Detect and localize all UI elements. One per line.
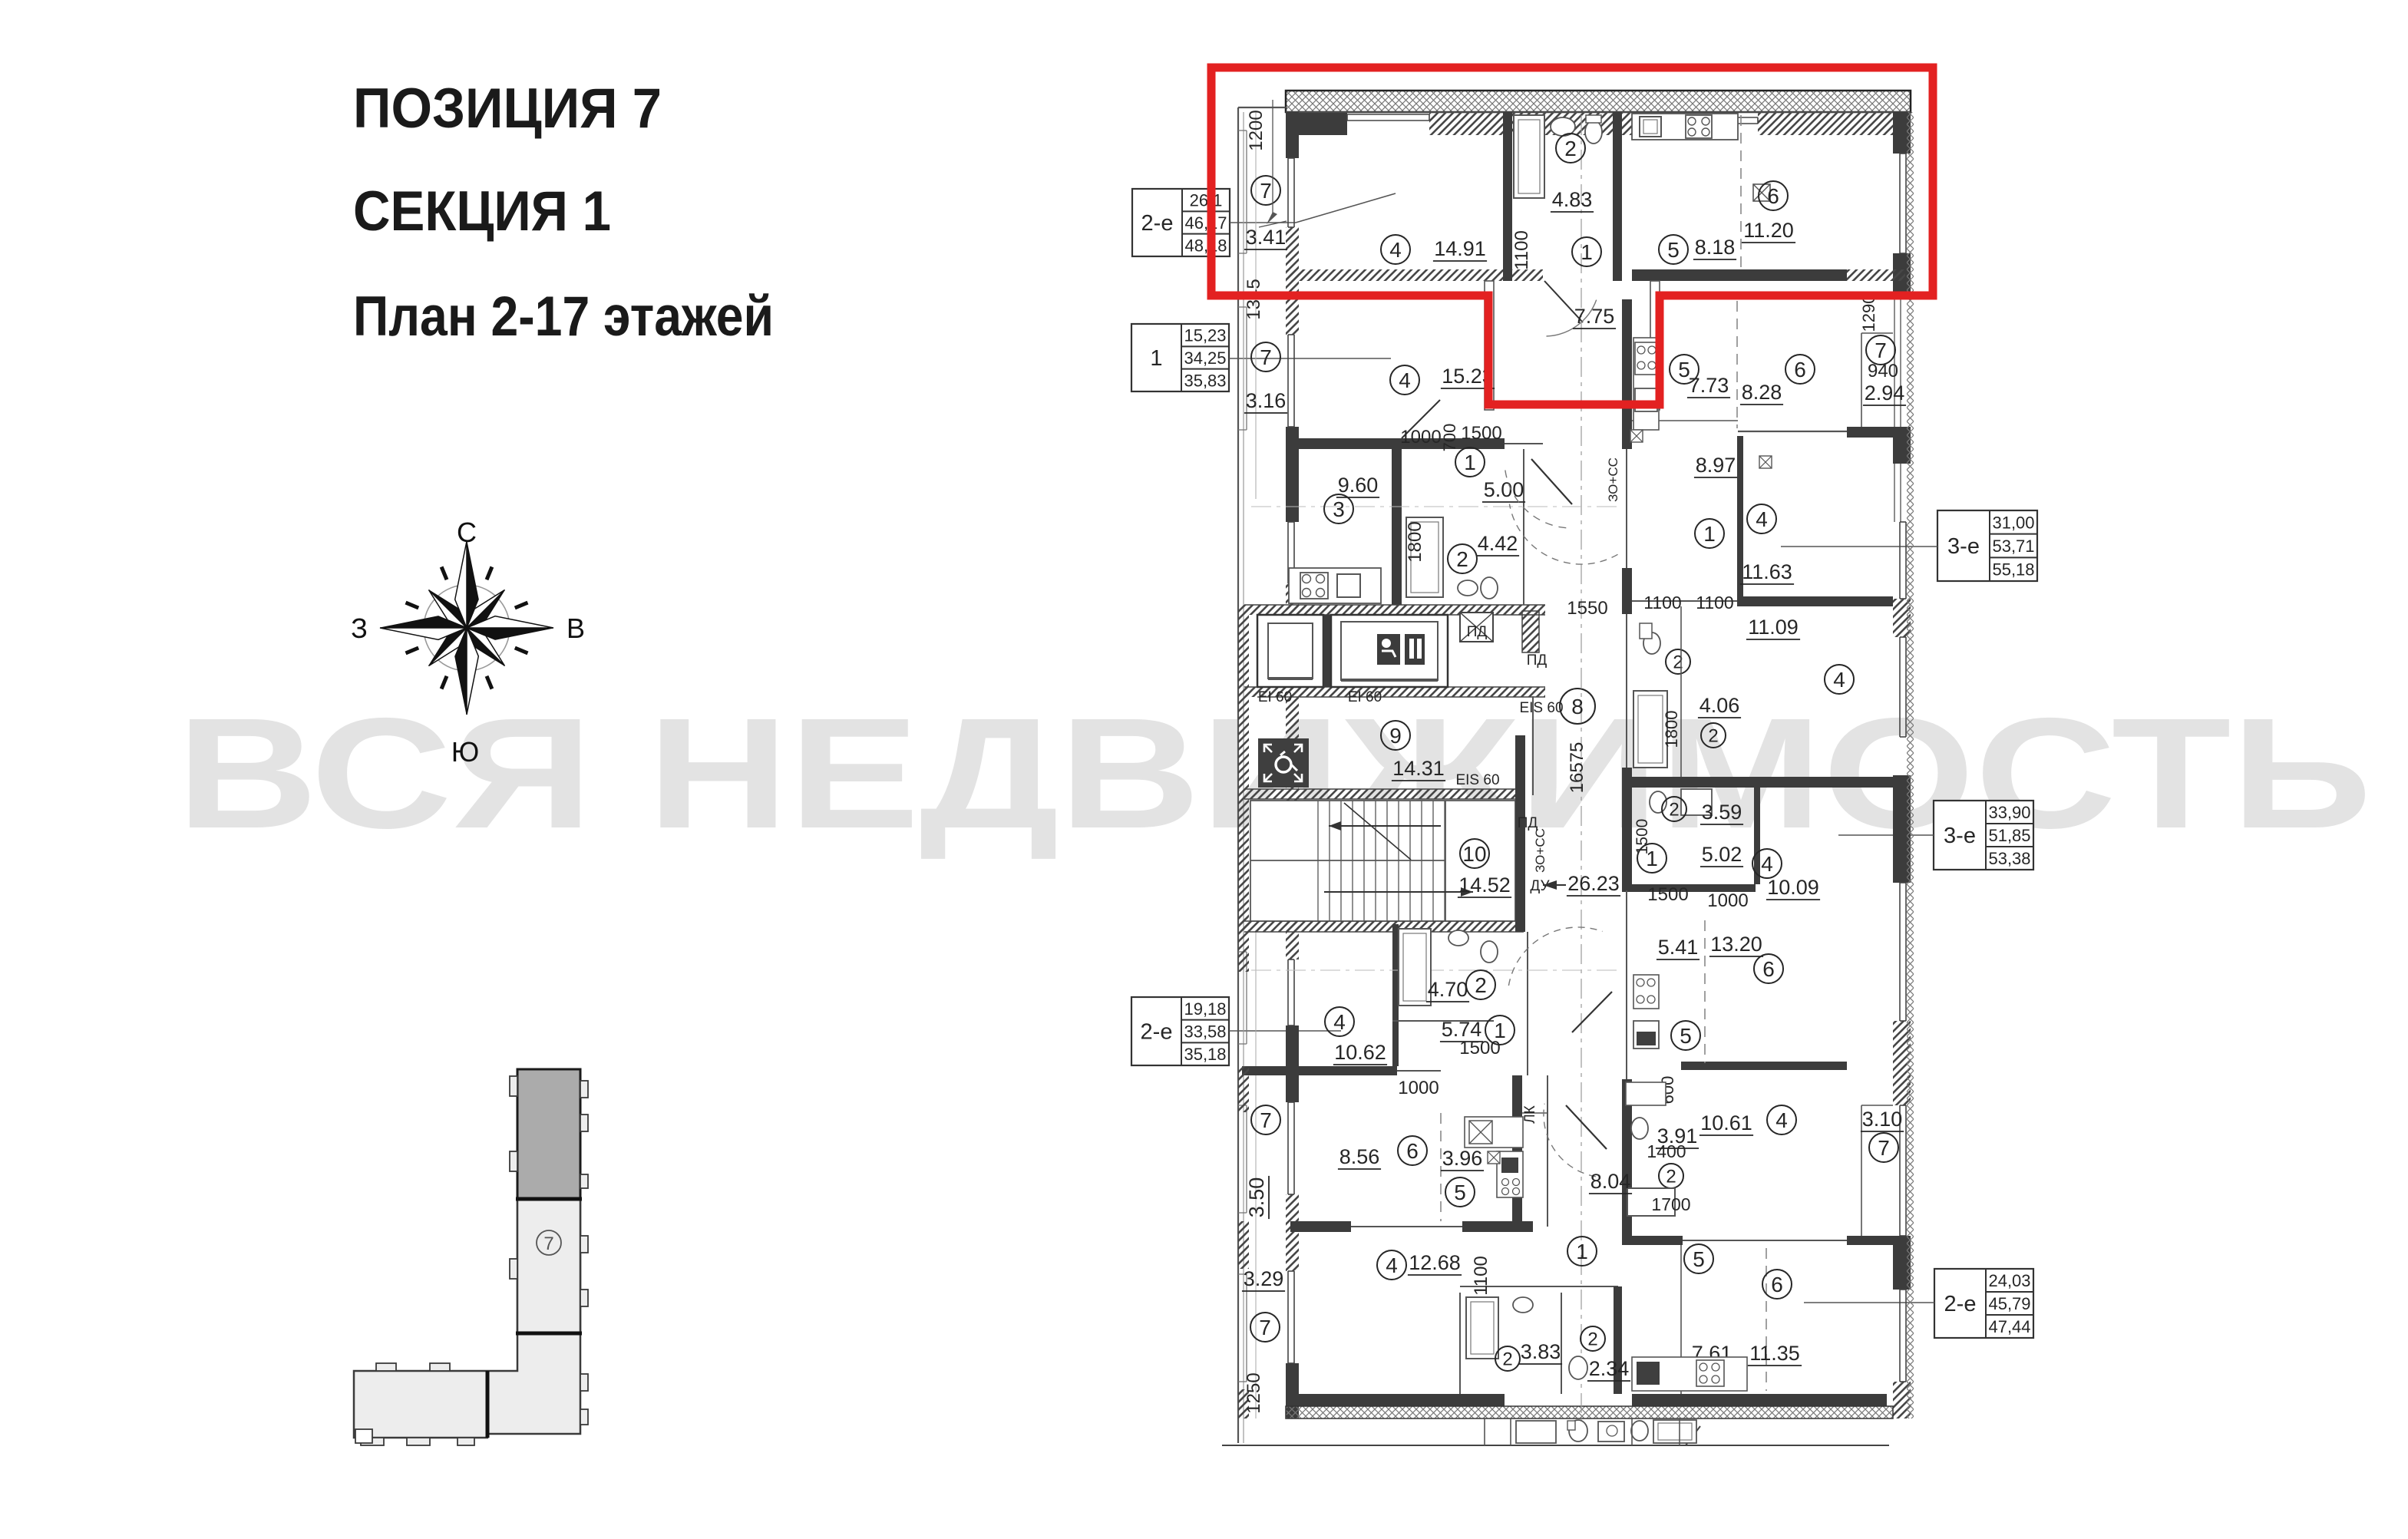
svg-text:С: С: [457, 517, 477, 548]
svg-text:1800: 1800: [1662, 711, 1681, 748]
svg-text:5.02: 5.02: [1702, 843, 1742, 866]
svg-text:2: 2: [1708, 726, 1718, 747]
svg-text:6: 6: [1762, 957, 1775, 981]
svg-text:45,79: 45,79: [1988, 1294, 2030, 1313]
svg-text:13.20: 13.20: [1710, 933, 1762, 956]
svg-text:1800: 1800: [1405, 521, 1425, 562]
svg-text:1: 1: [1581, 240, 1593, 264]
svg-text:940: 940: [1868, 361, 1898, 381]
svg-text:1100: 1100: [1471, 1256, 1491, 1296]
svg-text:1: 1: [1150, 346, 1162, 371]
svg-text:26.23: 26.23: [1567, 872, 1620, 895]
svg-text:2: 2: [1502, 1349, 1512, 1370]
svg-text:12.68: 12.68: [1409, 1251, 1461, 1274]
svg-text:3.29: 3.29: [1244, 1267, 1284, 1290]
svg-text:34,25: 34,25: [1184, 348, 1226, 368]
svg-text:В: В: [566, 613, 585, 644]
svg-text:4: 4: [1399, 368, 1411, 392]
svg-text:1: 1: [1576, 1240, 1588, 1263]
svg-text:8.56: 8.56: [1339, 1145, 1380, 1168]
svg-text:7: 7: [1878, 1136, 1890, 1160]
svg-text:7: 7: [1260, 179, 1272, 203]
svg-text:4: 4: [1386, 1253, 1398, 1277]
svg-text:3.16: 3.16: [1246, 389, 1287, 412]
svg-text:План 2-17 этажей: План 2-17 этажей: [353, 286, 774, 348]
svg-text:1: 1: [1703, 522, 1716, 546]
svg-text:8.28: 8.28: [1742, 381, 1782, 404]
svg-text:8: 8: [1571, 695, 1584, 718]
svg-text:2: 2: [1666, 1167, 1676, 1187]
svg-text:1000: 1000: [1398, 1078, 1439, 1098]
svg-text:9.60: 9.60: [1338, 474, 1379, 497]
svg-text:1500: 1500: [1459, 1038, 1500, 1058]
svg-text:3-е: 3-е: [1944, 824, 1976, 848]
svg-text:ЗО+СС: ЗО+СС: [1533, 828, 1548, 873]
svg-text:1700: 1700: [1651, 1194, 1690, 1214]
svg-text:1290: 1290: [1859, 295, 1878, 332]
svg-text:2: 2: [1587, 1329, 1597, 1350]
svg-text:2: 2: [1564, 137, 1577, 160]
svg-text:15,23: 15,23: [1184, 326, 1226, 345]
svg-text:10: 10: [1462, 842, 1486, 866]
svg-text:8.18: 8.18: [1695, 236, 1736, 259]
svg-text:19,18: 19,18: [1184, 999, 1226, 1019]
svg-text:26,1: 26,1: [1190, 191, 1223, 210]
svg-text:47,44: 47,44: [1988, 1317, 2030, 1336]
svg-text:7: 7: [1259, 1316, 1271, 1339]
svg-text:53,71: 53,71: [1992, 537, 2034, 556]
svg-text:6: 6: [1794, 358, 1806, 381]
svg-text:3: 3: [1333, 497, 1345, 521]
svg-text:ПД: ПД: [1467, 624, 1488, 640]
svg-text:4.70: 4.70: [1428, 978, 1468, 1001]
svg-text:7: 7: [1875, 339, 1887, 362]
svg-text:11.63: 11.63: [1742, 560, 1792, 583]
svg-text:ПД: ПД: [1527, 652, 1548, 669]
svg-text:8.97: 8.97: [1696, 454, 1736, 477]
svg-text:7: 7: [1260, 1108, 1272, 1132]
svg-text:5: 5: [1454, 1181, 1466, 1204]
svg-text:3.83: 3.83: [1521, 1340, 1561, 1363]
svg-text:55,18: 55,18: [1992, 560, 2034, 580]
svg-text:1200: 1200: [1246, 110, 1267, 150]
svg-text:4: 4: [1389, 238, 1402, 262]
svg-text:14.91: 14.91: [1434, 237, 1486, 260]
svg-text:EI 60: EI 60: [1258, 689, 1292, 705]
svg-text:6: 6: [1767, 184, 1779, 208]
svg-text:1: 1: [1464, 451, 1476, 474]
svg-text:1500: 1500: [1647, 884, 1688, 905]
svg-text:3.50: 3.50: [1245, 1177, 1268, 1218]
svg-text:46,17: 46,17: [1184, 213, 1227, 233]
svg-text:7: 7: [543, 1234, 553, 1254]
svg-text:3.10: 3.10: [1862, 1108, 1903, 1131]
svg-text:ПОЗИЦИЯ 7: ПОЗИЦИЯ 7: [353, 78, 662, 140]
svg-text:35,83: 35,83: [1184, 371, 1226, 390]
svg-text:11.09: 11.09: [1748, 616, 1799, 639]
svg-text:ЗО+СС: ЗО+СС: [1606, 457, 1620, 502]
svg-text:2: 2: [1669, 800, 1679, 821]
svg-text:4: 4: [1333, 1010, 1346, 1034]
svg-text:7.73: 7.73: [1689, 374, 1729, 397]
svg-text:11.20: 11.20: [1743, 219, 1794, 242]
svg-text:1550: 1550: [1567, 598, 1607, 619]
svg-text:8.04: 8.04: [1590, 1170, 1631, 1193]
svg-text:53,38: 53,38: [1988, 849, 2030, 868]
svg-text:4: 4: [1775, 1108, 1788, 1132]
svg-text:2-е: 2-е: [1944, 1292, 1977, 1316]
svg-text:10.09: 10.09: [1767, 876, 1819, 899]
svg-text:ЛК: ЛК: [1522, 1105, 1538, 1124]
svg-text:1100: 1100: [1696, 593, 1733, 613]
svg-text:1000: 1000: [1707, 890, 1748, 911]
svg-text:4.42: 4.42: [1478, 532, 1518, 555]
svg-text:10.61: 10.61: [1700, 1111, 1752, 1134]
svg-text:700: 700: [1440, 424, 1459, 452]
svg-text:33,90: 33,90: [1988, 803, 2030, 822]
svg-text:1100: 1100: [1511, 230, 1532, 270]
svg-text:14.31: 14.31: [1392, 757, 1445, 780]
svg-text:1250: 1250: [1244, 1372, 1264, 1413]
svg-text:6: 6: [1771, 1273, 1783, 1296]
svg-text:Ю: Ю: [451, 736, 479, 768]
svg-text:СЕКЦИЯ 1: СЕКЦИЯ 1: [353, 180, 611, 243]
svg-text:З: З: [351, 613, 368, 644]
svg-text:24,03: 24,03: [1988, 1271, 2030, 1290]
svg-text:4.06: 4.06: [1699, 694, 1740, 717]
svg-text:5.00: 5.00: [1484, 478, 1524, 501]
svg-text:2-е: 2-е: [1141, 211, 1174, 236]
svg-text:51,85: 51,85: [1988, 826, 2030, 845]
svg-text:2-е: 2-е: [1141, 1020, 1173, 1045]
svg-text:5: 5: [1667, 238, 1680, 262]
svg-text:2.94: 2.94: [1865, 381, 1905, 405]
svg-text:16575: 16575: [1567, 742, 1587, 794]
svg-text:5.41: 5.41: [1658, 936, 1699, 959]
svg-text:2: 2: [1456, 547, 1468, 571]
svg-text:31,00: 31,00: [1992, 513, 2034, 532]
svg-text:4: 4: [1833, 668, 1845, 692]
svg-text:2.34: 2.34: [1589, 1357, 1630, 1380]
svg-text:10.62: 10.62: [1334, 1041, 1386, 1064]
svg-text:3.59: 3.59: [1702, 801, 1742, 824]
svg-text:EI 60: EI 60: [1348, 689, 1382, 705]
svg-text:1: 1: [1646, 847, 1658, 870]
svg-text:4: 4: [1756, 507, 1768, 531]
svg-text:5: 5: [1680, 1024, 1692, 1048]
svg-text:2: 2: [1475, 973, 1487, 997]
svg-text:9: 9: [1389, 724, 1402, 748]
svg-text:3.96: 3.96: [1442, 1147, 1483, 1170]
svg-text:1500: 1500: [1461, 423, 1501, 444]
svg-text:4: 4: [1761, 852, 1773, 876]
svg-text:33,58: 33,58: [1184, 1022, 1226, 1042]
svg-text:7.75: 7.75: [1574, 305, 1615, 328]
svg-text:1100: 1100: [1643, 593, 1681, 613]
svg-text:11.35: 11.35: [1749, 1342, 1800, 1365]
svg-text:5: 5: [1693, 1247, 1705, 1271]
svg-text:3.41: 3.41: [1246, 226, 1287, 249]
svg-text:48,18: 48,18: [1184, 236, 1227, 255]
svg-text:EIS 60: EIS 60: [1519, 700, 1563, 716]
svg-text:3-е: 3-е: [1947, 534, 1980, 559]
svg-text:1400: 1400: [1647, 1141, 1686, 1161]
svg-text:6: 6: [1406, 1139, 1419, 1163]
svg-text:7: 7: [1260, 345, 1272, 369]
svg-text:35,18: 35,18: [1184, 1045, 1226, 1064]
svg-text:1000: 1000: [1400, 427, 1441, 447]
svg-text:4.83: 4.83: [1552, 188, 1593, 211]
svg-text:14.52: 14.52: [1458, 874, 1511, 897]
svg-text:EIS 60: EIS 60: [1455, 772, 1499, 788]
